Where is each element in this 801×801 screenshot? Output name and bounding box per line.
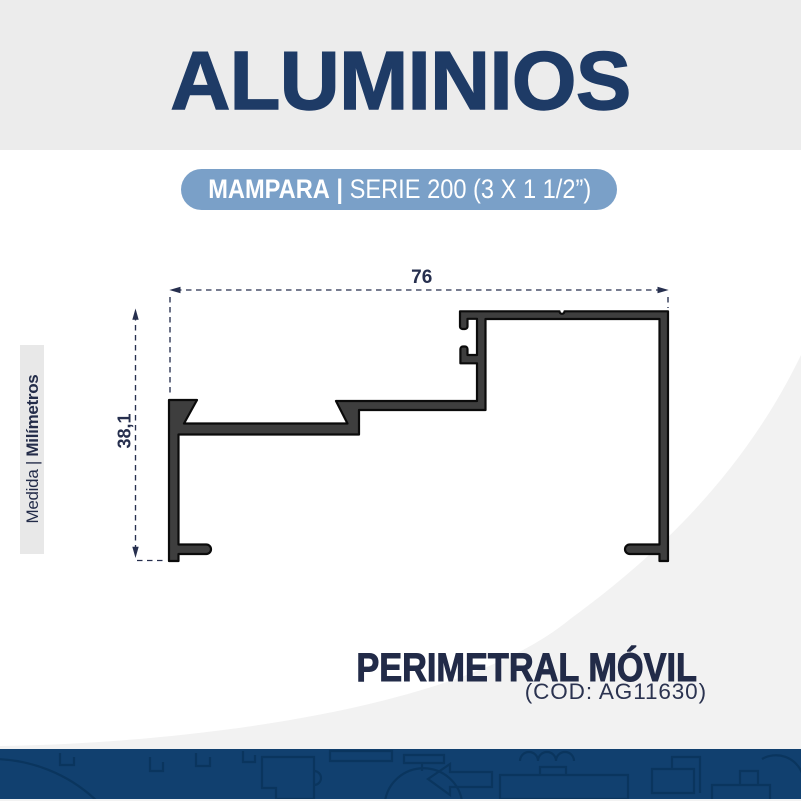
svg-text:38,1: 38,1 xyxy=(115,413,135,448)
svg-text:76: 76 xyxy=(411,267,432,288)
